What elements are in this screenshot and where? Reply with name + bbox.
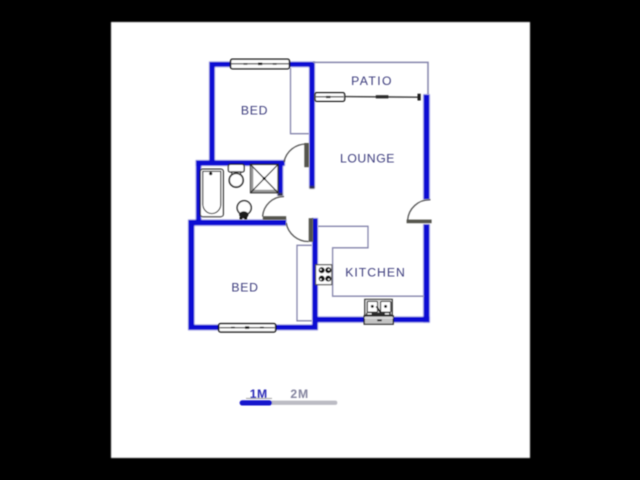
svg-text:1M: 1M xyxy=(250,387,268,401)
svg-text:KITCHEN: KITCHEN xyxy=(345,265,406,279)
svg-text:LOUNGE: LOUNGE xyxy=(340,152,395,166)
svg-text:BED: BED xyxy=(231,280,258,294)
svg-text:2M: 2M xyxy=(290,387,309,401)
svg-text:PATIO: PATIO xyxy=(351,74,393,88)
svg-text:BED: BED xyxy=(241,103,268,117)
